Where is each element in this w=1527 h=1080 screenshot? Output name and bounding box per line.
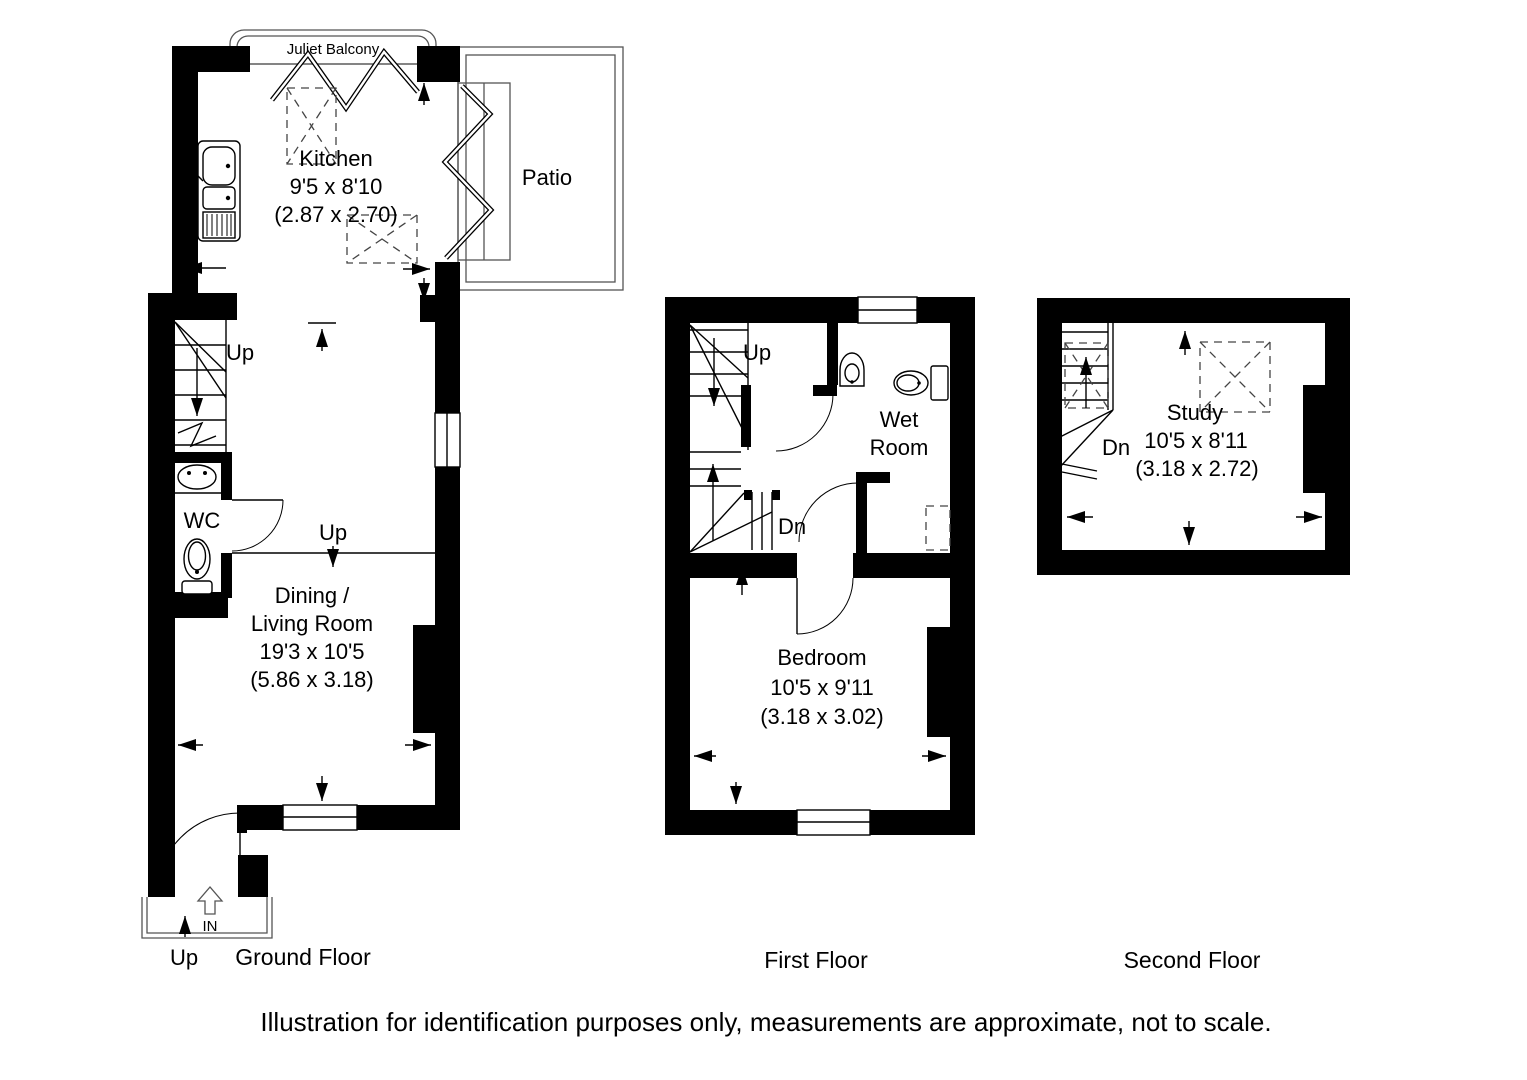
first-stairs-dn-label: Dn bbox=[778, 514, 806, 539]
wet-room-label-1: Wet bbox=[880, 407, 919, 432]
kitchen-sink-unit bbox=[192, 141, 240, 241]
kitchen-dims-metric: (2.87 x 2.70) bbox=[274, 202, 398, 227]
first-floor-title: First Floor bbox=[764, 947, 868, 973]
wc-door-swing bbox=[232, 500, 283, 551]
dining-name-2: Living Room bbox=[251, 611, 373, 636]
disclaimer-caption: Illustration for identification purposes… bbox=[260, 1007, 1271, 1037]
study-dims-imperial: 10'5 x 8'11 bbox=[1144, 428, 1247, 453]
window-first-bottom bbox=[797, 810, 870, 835]
bedroom-dims-imperial: 10'5 x 9'11 bbox=[770, 675, 873, 700]
ground-stairs-up-label: Up bbox=[226, 340, 254, 365]
bedroom-dims-metric: (3.18 x 3.02) bbox=[760, 704, 884, 729]
first-stairs-up-label: Up bbox=[743, 340, 771, 365]
first-floor-plan: Up Dn Wet Room Bedroom 10'5 x 9'11 bbox=[665, 297, 975, 973]
shower-tray bbox=[926, 506, 950, 550]
wet-room-door-swing bbox=[799, 483, 858, 542]
juliet-balcony: Juliet Balcony bbox=[230, 30, 436, 64]
kitchen-label-group: Kitchen 9'5 x 8'10 (2.87 x 2.70) bbox=[274, 146, 398, 227]
floor-plan-svg: Patio Juliet Balcony bbox=[0, 0, 1527, 1080]
second-stairs: Dn bbox=[1060, 323, 1130, 479]
wc-label: WC bbox=[184, 508, 221, 533]
second-stairs-dn-label: Dn bbox=[1102, 435, 1130, 460]
patio-label: Patio bbox=[522, 165, 572, 190]
wet-room-label-2: Room bbox=[870, 435, 929, 460]
second-floor-plan: Dn Study 10'5 x 8'11 (3.18 x 2.72) Secon… bbox=[1037, 298, 1350, 973]
bedroom-label-group: Bedroom 10'5 x 9'11 (3.18 x 3.02) bbox=[760, 645, 884, 729]
bifold-doors-top bbox=[272, 52, 418, 108]
in-arrow-icon bbox=[198, 887, 222, 914]
kitchen-dims-imperial: 9'5 x 8'10 bbox=[290, 174, 383, 199]
dining-dims-imperial: 19'3 x 10'5 bbox=[259, 639, 364, 664]
bedroom-door bbox=[797, 578, 853, 634]
ground-floor-plan: Patio Juliet Balcony bbox=[142, 30, 623, 970]
first-stairs: Up Dn bbox=[690, 323, 806, 552]
floorplan-canvas: Patio Juliet Balcony bbox=[0, 0, 1527, 1080]
wc-basin bbox=[178, 465, 216, 489]
study-dims-metric: (3.18 x 2.72) bbox=[1135, 456, 1259, 481]
second-floor-title: Second Floor bbox=[1124, 947, 1261, 973]
first-walls bbox=[665, 297, 975, 835]
patio-area: Patio bbox=[458, 47, 623, 290]
kitchen-name: Kitchen bbox=[299, 146, 372, 171]
ground-floor-title: Ground Floor bbox=[235, 944, 371, 970]
room-up-marker: Up bbox=[319, 520, 347, 567]
study-name: Study bbox=[1167, 400, 1223, 425]
juliet-balcony-label: Juliet Balcony bbox=[287, 41, 380, 58]
window-first-top bbox=[858, 297, 917, 323]
wet-room-label-group: Wet Room bbox=[870, 407, 929, 460]
dining-name-1: Dining / bbox=[275, 583, 350, 608]
entrance-in-label: IN bbox=[203, 918, 218, 935]
hall-door-swing bbox=[776, 394, 833, 451]
bedroom-name: Bedroom bbox=[777, 645, 866, 670]
dining-label-group: Dining / Living Room 19'3 x 10'5 (5.86 x… bbox=[250, 583, 374, 692]
dining-dims-metric: (5.86 x 3.18) bbox=[250, 667, 374, 692]
window-right-wall bbox=[435, 413, 460, 467]
window-front-wall bbox=[283, 805, 357, 830]
ground-stairs: Up bbox=[175, 322, 254, 446]
room-up-label: Up bbox=[319, 520, 347, 545]
porch-up-label: Up bbox=[170, 945, 198, 970]
